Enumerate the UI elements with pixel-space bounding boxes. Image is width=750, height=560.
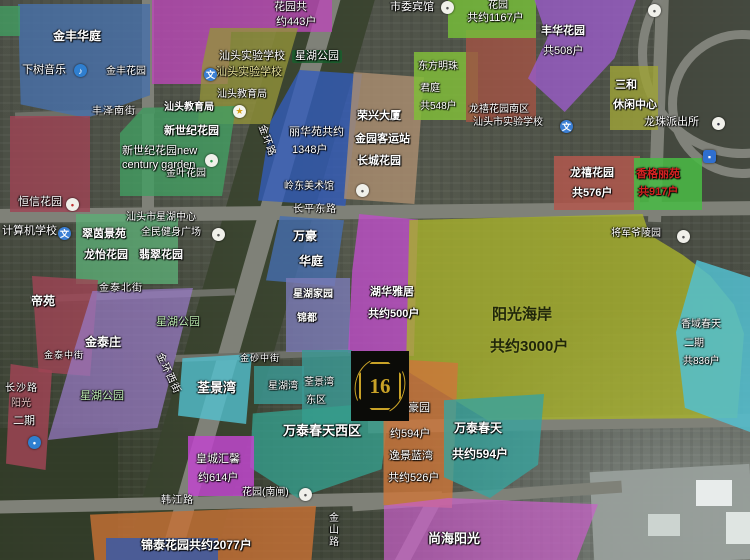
map-label: 二期 xyxy=(684,338,704,350)
primary-school-wen-icon[interactable]: 文 xyxy=(560,120,573,133)
map-label: 龙禧花园 xyxy=(570,167,614,180)
map-label: 万豪 xyxy=(293,230,317,244)
map-label: 金园客运站 xyxy=(355,133,410,146)
map-label: 翡翠花园 xyxy=(139,249,183,262)
map-label: 龙禧花园南区 xyxy=(469,104,529,116)
map-label: 韩江路 xyxy=(161,495,194,507)
satellite-map[interactable]: 16 金丰华庭下树音乐金丰花园丰泽南街花园共约443户市委宾馆星湖公园汕头实验学… xyxy=(0,0,750,560)
hotel-poi-icon[interactable]: • xyxy=(441,1,454,14)
map-label: 花园 xyxy=(488,0,508,12)
map-label: 恒信花园 xyxy=(18,196,62,209)
map-label: 星湖公园 xyxy=(80,390,124,403)
bus-station-poi-icon[interactable]: • xyxy=(356,184,369,197)
cemetery-poi-icon[interactable]: • xyxy=(677,230,690,243)
map-label: 龙怡花园 xyxy=(84,249,128,262)
map-label: 东区 xyxy=(306,395,326,407)
building-3 xyxy=(648,514,680,536)
south-gate-poi-icon[interactable]: • xyxy=(299,488,312,501)
map-label: 二期 xyxy=(13,415,35,428)
map-label: 汕头市实验学校 xyxy=(473,117,543,129)
parcel-longxi-garden-576[interactable] xyxy=(554,156,640,210)
parcel-xianggeli-917[interactable] xyxy=(634,158,702,210)
hengxin-poi-icon[interactable]: • xyxy=(66,198,79,211)
map-label: 阳光海岸 xyxy=(492,306,552,323)
map-label: 长城花园 xyxy=(357,155,401,168)
map-label: 东方明珠 xyxy=(418,61,458,73)
map-label: 共约3000户 xyxy=(490,338,568,355)
map-label: 长沙路 xyxy=(5,383,38,395)
map-label: 星湖公园 xyxy=(292,50,342,63)
map-label: 星湖湾 xyxy=(268,381,298,393)
parcel-jinfeng-huating[interactable] xyxy=(18,4,150,118)
computer-school-wen-icon[interactable]: 文 xyxy=(58,227,71,240)
police-station-poi-icon[interactable]: • xyxy=(712,117,725,130)
map-label: 金泰中街 xyxy=(44,350,84,360)
map-label: 翠茵景苑 xyxy=(82,228,126,241)
top-right-poi-icon[interactable]: • xyxy=(648,4,661,17)
map-label: 丰华花园 xyxy=(541,25,585,38)
map-label: 荃景湾 xyxy=(304,377,334,389)
map-label: 共约1167户 xyxy=(467,12,524,25)
map-label: 星湖家园 xyxy=(293,289,333,301)
map-label: 三和 xyxy=(615,79,637,92)
brand-16-logo: 16 xyxy=(351,351,409,421)
map-label: 约443户 xyxy=(276,16,316,29)
map-label: 金叶花园 xyxy=(166,168,206,180)
map-label: 香域春天 xyxy=(681,319,721,331)
metro-poi-icon[interactable]: • xyxy=(28,436,41,449)
map-label: 共548户 xyxy=(420,101,457,113)
building-1 xyxy=(696,480,732,506)
map-label: 金丰华庭 xyxy=(53,30,101,44)
logo-emblem: 16 xyxy=(359,362,401,410)
map-label: 尚海阳光 xyxy=(428,532,480,547)
map-label: 共508户 xyxy=(543,45,583,58)
map-label: 金泰庄 xyxy=(85,336,121,350)
map-label: 岭东美术馆 xyxy=(284,181,334,193)
map-label: 下树音乐 xyxy=(22,64,66,77)
map-label: 休闲中心 xyxy=(613,99,657,112)
parcel-wantai-chuntian[interactable] xyxy=(444,394,544,498)
map-label: 汕头实验学校 xyxy=(219,50,285,63)
map-label: 汕头市星湖中心 xyxy=(126,212,196,224)
map-label: 湖华雅居 xyxy=(370,286,414,299)
parcel-corner-green[interactable] xyxy=(0,6,20,36)
map-label: 香格丽苑 xyxy=(636,168,680,181)
map-label: 君庭 xyxy=(420,83,440,95)
map-label: 华庭 xyxy=(299,255,323,269)
map-label: 金泰北街 xyxy=(99,283,143,295)
map-label: 星湖公园 xyxy=(156,316,200,329)
map-label: 荣兴大厦 xyxy=(357,110,401,123)
map-label: 市委宾馆 xyxy=(390,1,434,14)
map-label: 长平东路 xyxy=(293,204,337,216)
map-label: 花园共 xyxy=(274,1,307,14)
map-label: 荃景湾 xyxy=(197,381,236,396)
map-label: 约614户 xyxy=(198,472,238,485)
map-label: 汕头教育局 xyxy=(217,89,267,101)
map-label: 新世纪花园 xyxy=(164,125,219,138)
map-label: 阳光 xyxy=(11,398,31,410)
map-label: 新世纪花园new xyxy=(122,145,197,158)
map-label: 计算机学校 xyxy=(2,225,57,238)
map-label: 皇城汇馨 xyxy=(196,453,240,466)
map-label: 共约594户 xyxy=(452,448,508,462)
lock-icon[interactable]: ▪ xyxy=(703,150,716,163)
map-label: 汕头教育局 xyxy=(164,102,214,114)
map-label: 共917户 xyxy=(638,186,678,199)
map-label: 锦都 xyxy=(297,313,317,325)
map-label: 共约500户 xyxy=(368,308,419,321)
map-label: 共836户 xyxy=(683,356,720,368)
map-label: 汕头实验学校 xyxy=(216,66,282,79)
map-label: 共576户 xyxy=(572,187,612,200)
map-label: 万泰春天 xyxy=(454,422,502,436)
school-wen-icon[interactable]: 文 xyxy=(204,68,217,81)
education-star-icon[interactable]: ★ xyxy=(233,105,246,118)
map-label: 锦泰花园共约2077户 xyxy=(141,539,252,553)
map-label: 全民健身广场 xyxy=(141,227,201,239)
map-label: 共约526户 xyxy=(388,472,439,485)
map-label: 龙珠派出所 xyxy=(644,116,699,129)
map-label: 逸景蓝湾 xyxy=(389,450,433,463)
map-label: 万泰春天西区 xyxy=(283,424,361,439)
building-2 xyxy=(726,512,750,544)
map-label: 花园(南闸) xyxy=(242,487,289,499)
map-label: 帝苑 xyxy=(31,295,55,309)
map-label: 约594户 xyxy=(390,428,430,441)
map-label: 1348户 xyxy=(292,144,327,157)
music-icon[interactable]: ♪ xyxy=(74,64,87,77)
map-label: 丽华苑共约 xyxy=(289,126,344,139)
fitness-plaza-poi-icon[interactable]: • xyxy=(212,228,225,241)
parcel-shanghai-yangguang[interactable] xyxy=(384,498,598,560)
map-label: 将军爷陵园 xyxy=(611,228,661,240)
map-label: 金丰花园 xyxy=(106,66,146,78)
garden-poi-icon[interactable]: • xyxy=(205,154,218,167)
map-label: 丰泽南街 xyxy=(92,106,136,118)
map-label: 金砂中街 xyxy=(240,353,280,363)
map-label: 金山路 xyxy=(326,512,338,548)
